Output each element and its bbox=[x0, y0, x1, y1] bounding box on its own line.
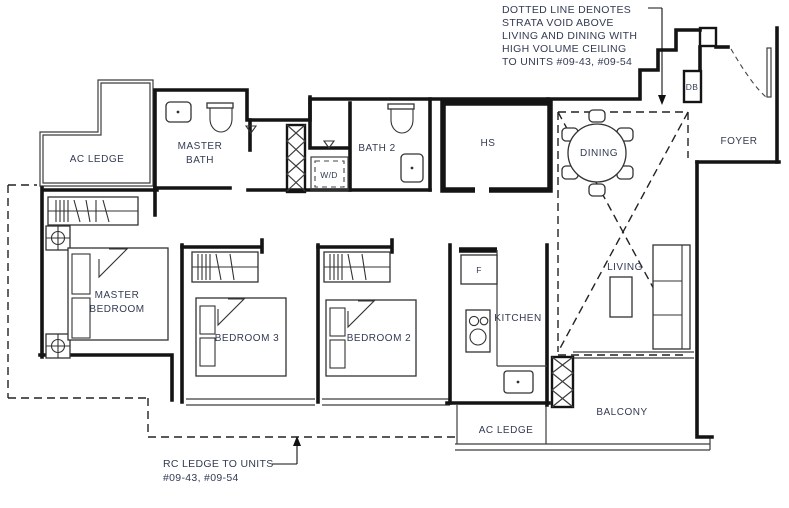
hob bbox=[466, 310, 490, 352]
ac-ledge-top-outline bbox=[40, 80, 153, 186]
label-dining: DINING bbox=[580, 148, 618, 159]
living-furniture bbox=[610, 245, 690, 349]
bedroom2-furniture bbox=[324, 252, 416, 376]
bath2-sink bbox=[401, 154, 423, 182]
household-shelter-walls bbox=[443, 103, 550, 190]
rc-ledge-leader bbox=[272, 436, 301, 464]
coffee-table bbox=[610, 277, 632, 317]
label-fridge: F bbox=[476, 265, 482, 275]
label-master-bath-line1: MASTER bbox=[178, 141, 223, 152]
sofa bbox=[653, 245, 690, 349]
rc-ledge-note-line1: RC LEDGE TO UNITS bbox=[163, 458, 274, 470]
floor-plan-drawing: DOTTED LINE DENOTES STRATA VOID ABOVE LI… bbox=[0, 0, 789, 508]
master-bedroom-furniture bbox=[46, 197, 168, 358]
strata-void-note-line4: HIGH VOLUME CEILING bbox=[502, 43, 626, 55]
strata-void-note-line3: LIVING AND DINING WITH bbox=[502, 30, 637, 42]
rc-ledge-note-line2: #09-43, #09-54 bbox=[163, 472, 239, 484]
label-ac-ledge-top: AC LEDGE bbox=[70, 154, 125, 165]
master-bath-toilet bbox=[207, 103, 233, 132]
entry-pilaster bbox=[700, 28, 716, 46]
label-bedroom3: BEDROOM 3 bbox=[215, 333, 280, 344]
strata-void-note-line5: TO UNITS #09-43, #09-54 bbox=[502, 56, 632, 68]
entry-door bbox=[731, 48, 771, 97]
label-master-bedroom-line2: BEDROOM bbox=[89, 304, 144, 315]
label-bath2: BATH 2 bbox=[358, 143, 395, 154]
label-master-bedroom-line1: MASTER bbox=[95, 290, 140, 301]
strata-void-note-line2: STRATA VOID ABOVE bbox=[502, 17, 614, 29]
label-hs: HS bbox=[481, 138, 496, 149]
label-db: DB bbox=[686, 82, 699, 92]
label-foyer: FOYER bbox=[721, 136, 758, 147]
entry-door-leaf bbox=[767, 48, 771, 97]
floor-plan-page: DOTTED LINE DENOTES STRATA VOID ABOVE LI… bbox=[0, 0, 789, 508]
label-balcony: BALCONY bbox=[596, 407, 647, 418]
entry-door-swing-arc bbox=[731, 49, 766, 97]
door-markers bbox=[246, 126, 334, 148]
label-master-bath-line2: BATH bbox=[186, 155, 214, 166]
label-kitchen: KITCHEN bbox=[494, 313, 541, 324]
duct-shaft-balcony bbox=[552, 357, 573, 407]
rc-ledge-note: RC LEDGE TO UNITS #09-43, #09-54 bbox=[163, 458, 274, 484]
duct-shaft-corridor bbox=[287, 125, 305, 192]
bath2-toilet bbox=[388, 104, 414, 133]
label-bedroom2: BEDROOM 2 bbox=[347, 333, 412, 344]
master-bath-sink bbox=[166, 102, 191, 122]
bedroom3-furniture bbox=[192, 252, 286, 376]
strata-void-note-line1: DOTTED LINE DENOTES bbox=[502, 4, 631, 16]
label-living: LIVING bbox=[607, 262, 643, 273]
label-ac-ledge-bottom: AC LEDGE bbox=[479, 425, 534, 436]
label-wd: W/D bbox=[320, 170, 338, 180]
strata-void-note: DOTTED LINE DENOTES STRATA VOID ABOVE LI… bbox=[502, 4, 637, 68]
